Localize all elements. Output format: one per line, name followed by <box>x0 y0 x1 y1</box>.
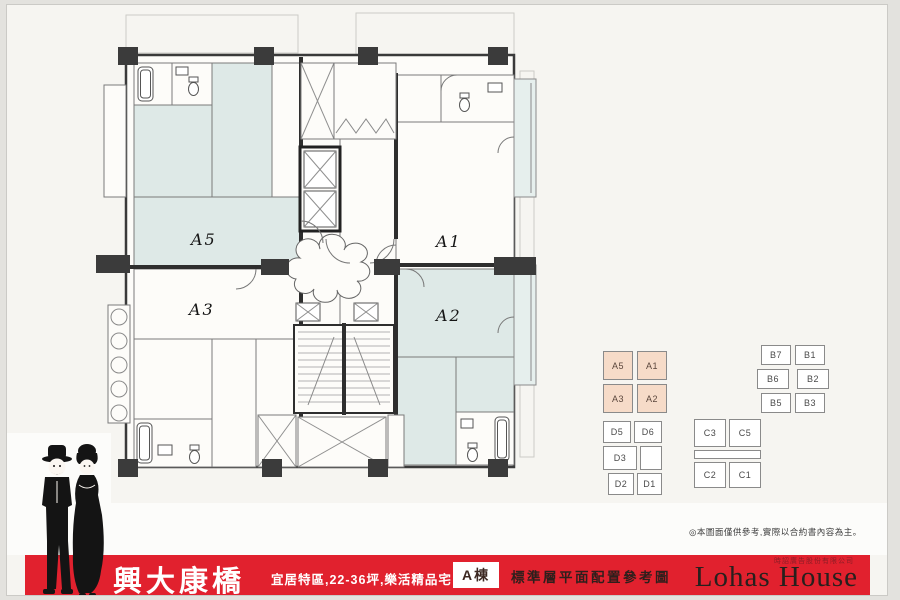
bathtub-icon <box>138 67 153 101</box>
keyplan-cell: B3 <box>795 393 825 413</box>
elevator-icon <box>304 191 336 227</box>
unit-label-a2: A2 <box>434 306 462 325</box>
brand-name: Lohas House <box>695 561 858 594</box>
unit-label-a3: A3 <box>187 300 215 319</box>
keyplan-cell: B2 <box>797 369 829 389</box>
flyer-page: A5 A1 A3 A2 A5 A1 A3 A2 B7 B1 B6 B2 B5 B… <box>6 4 888 596</box>
footer-banner: 興大康橋 宜居特區,22-36坪,樂活精品宅 A棟 標準層平面配置參考圖 時詔廣… <box>25 555 870 596</box>
woman-silhouette <box>73 444 104 596</box>
tagline: 宜居特區,22-36坪,樂活精品宅 <box>271 569 452 588</box>
plan-title: 標準層平面配置參考圖 <box>511 566 671 586</box>
toilet-icon <box>468 443 478 462</box>
bathtub-icon <box>137 423 152 463</box>
couple-illustration <box>17 441 109 596</box>
unit-a5-rooms <box>134 63 301 267</box>
keyplan-cell: D5 <box>603 421 631 443</box>
keyplan-cell: A1 <box>637 351 667 380</box>
keyplan-cell: B5 <box>761 393 791 413</box>
keyplan-cell: A3 <box>603 384 633 413</box>
keyplan-cell: B7 <box>761 345 791 365</box>
keyplan-building-b: B7 B1 B6 B2 B5 B3 <box>757 345 831 415</box>
light-well-top <box>301 63 396 139</box>
keyplan-cell: C5 <box>729 419 761 447</box>
keyplan-cell: C3 <box>694 419 726 447</box>
keyplan-cell <box>640 446 662 470</box>
keyplan-cell: B1 <box>795 345 825 365</box>
keyplan-corridor <box>694 450 761 459</box>
keyplan-cell: D3 <box>603 446 637 470</box>
floor-plan: A5 A1 A3 A2 <box>96 7 546 512</box>
keyplan-cell: D1 <box>637 473 662 495</box>
sink-icon <box>176 67 188 75</box>
bathtub-icon <box>495 417 509 461</box>
keyplan-cell: D6 <box>634 421 662 443</box>
keyplan-building-d: D5 D6 D3 D2 D1 <box>603 421 665 497</box>
balcony-right <box>514 79 536 385</box>
keyplan-cell: C1 <box>729 462 761 488</box>
building-badge: A棟 <box>453 562 499 588</box>
stairs <box>294 325 394 413</box>
unit-label-a5: A5 <box>189 230 217 249</box>
disclaimer-text: ◎本圖面僅供參考,實際以合約書內容為主。 <box>689 526 862 538</box>
keyplan-cell: A2 <box>637 384 667 413</box>
keyplan-building-c: C3 C5 C2 C1 <box>694 419 764 493</box>
cloud-outline <box>286 234 369 302</box>
toilet-icon <box>460 93 470 112</box>
man-silhouette <box>42 445 73 594</box>
toilet-icon <box>190 445 200 464</box>
sink-icon <box>461 419 473 428</box>
elevator-shaft <box>300 147 340 231</box>
toilet-icon <box>189 77 199 96</box>
keyplan-cell: D2 <box>608 473 634 495</box>
sink-icon <box>488 83 502 92</box>
keyplan-cell: C2 <box>694 462 726 488</box>
sink-icon <box>158 445 172 455</box>
unit-label-a1: A1 <box>434 232 462 251</box>
keyplan-cell: A5 <box>603 351 633 380</box>
keyplan-cell: B6 <box>757 369 789 389</box>
project-name: 興大康橋 <box>113 558 245 596</box>
elevator-icon <box>304 151 336 188</box>
keyplan-building-a: A5 A1 A3 A2 <box>603 351 669 415</box>
